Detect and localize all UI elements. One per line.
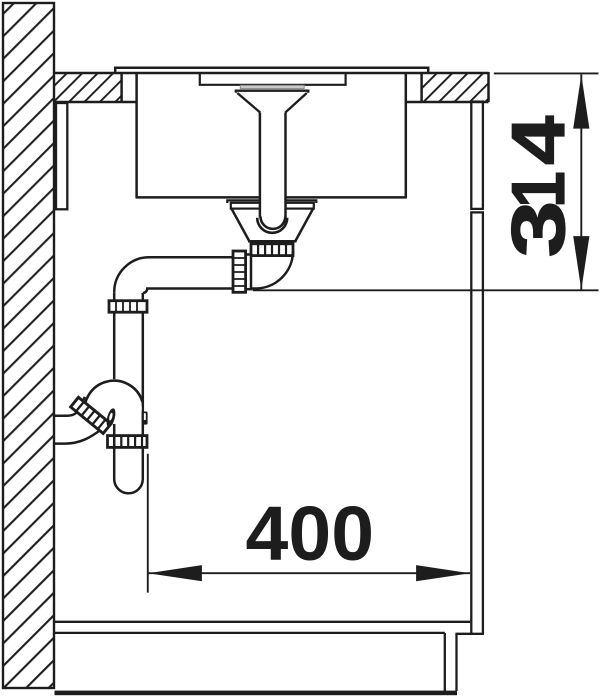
svg-text:4: 4 [496,116,580,165]
svg-text:400: 400 [246,491,374,577]
svg-text:1: 1 [496,171,580,208]
svg-text:3: 3 [496,201,580,258]
